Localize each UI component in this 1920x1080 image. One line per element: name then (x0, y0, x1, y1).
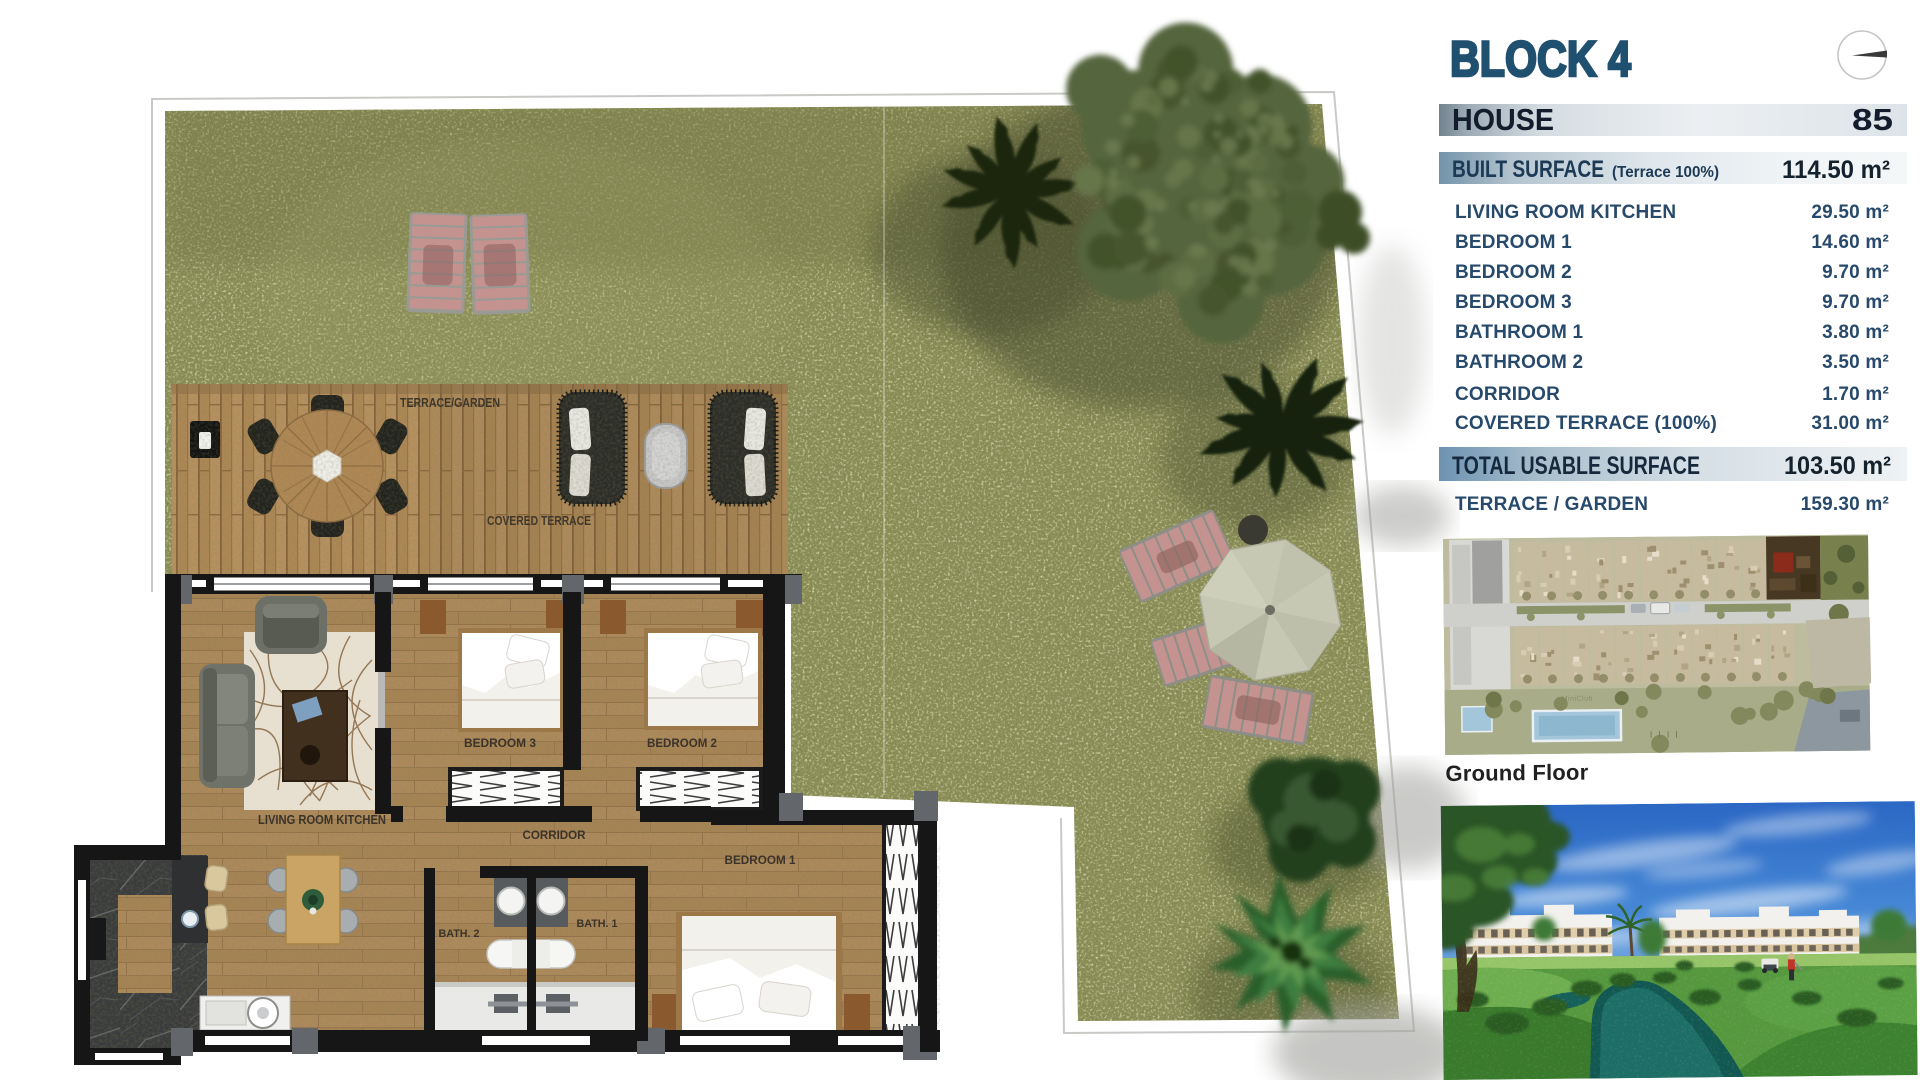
svg-text:(Terrace 100%): (Terrace 100%) (1612, 164, 1719, 181)
svg-text:CORRIDOR: CORRIDOR (1455, 384, 1560, 405)
svg-text:BEDROOM 3: BEDROOM 3 (464, 736, 536, 750)
svg-text:TOTAL USABLE SURFACE: TOTAL USABLE SURFACE (1452, 452, 1700, 480)
svg-text:1.70 m²: 1.70 m² (1822, 384, 1889, 405)
svg-text:159.30 m²: 159.30 m² (1801, 494, 1889, 515)
svg-text:LIVING ROOM KITCHEN: LIVING ROOM KITCHEN (1455, 202, 1676, 223)
svg-text:BEDROOM 3: BEDROOM 3 (1455, 292, 1572, 313)
svg-text:BEDROOM 2: BEDROOM 2 (1455, 262, 1572, 283)
svg-text:85: 85 (1852, 102, 1893, 137)
svg-text:BATHROOM 2: BATHROOM 2 (1455, 352, 1583, 373)
svg-text:BLOCK 4: BLOCK 4 (1450, 31, 1631, 87)
svg-text:114.50 m²: 114.50 m² (1782, 156, 1890, 184)
svg-text:MiniClub: MiniClub (1562, 695, 1593, 702)
svg-text:BATHROOM 1: BATHROOM 1 (1455, 322, 1584, 343)
svg-text:9.70 m²: 9.70 m² (1822, 292, 1889, 313)
svg-text:BEDROOM 1: BEDROOM 1 (725, 853, 796, 867)
svg-text:CORRIDOR: CORRIDOR (523, 828, 586, 842)
svg-text:LIVING ROOM KITCHEN: LIVING ROOM KITCHEN (258, 813, 386, 827)
svg-text:31.00 m²: 31.00 m² (1811, 413, 1889, 434)
svg-text:BEDROOM 2: BEDROOM 2 (647, 736, 717, 750)
svg-text:BATH. 1: BATH. 1 (577, 918, 618, 930)
svg-text:14.60 m²: 14.60 m² (1811, 232, 1889, 253)
svg-text:3.50 m²: 3.50 m² (1822, 352, 1889, 373)
svg-text:l l l l: l l l l (1650, 730, 1680, 740)
svg-text:BUILT SURFACE: BUILT SURFACE (1452, 156, 1604, 183)
svg-text:TERRACE / GARDEN: TERRACE / GARDEN (1455, 494, 1648, 515)
svg-text:BATH. 2: BATH. 2 (439, 928, 480, 940)
svg-text:9.70 m²: 9.70 m² (1822, 262, 1889, 283)
svg-text:COVERED TERRACE (100%): COVERED TERRACE (100%) (1455, 413, 1717, 434)
svg-text:BEDROOM 1: BEDROOM 1 (1455, 232, 1572, 253)
svg-text:103.50 m²: 103.50 m² (1784, 452, 1891, 480)
svg-text:Ground Floor: Ground Floor (1445, 759, 1588, 785)
svg-text:29.50 m²: 29.50 m² (1811, 202, 1889, 223)
svg-text:HOUSE: HOUSE (1452, 102, 1554, 137)
svg-text:3.80 m²: 3.80 m² (1822, 322, 1889, 343)
